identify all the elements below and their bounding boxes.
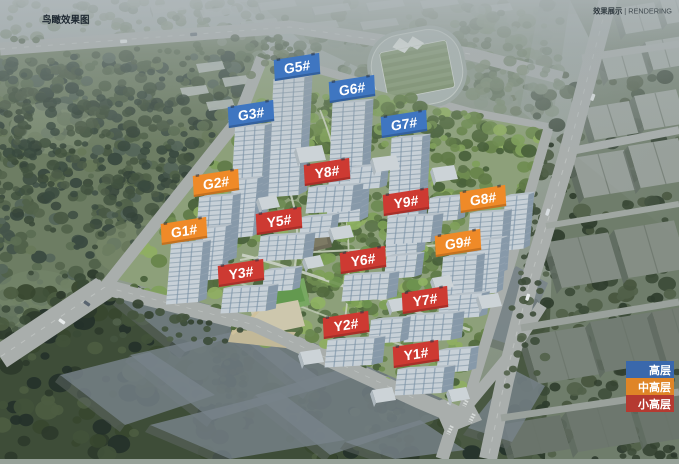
svg-text:高层: 高层 [649,363,671,377]
svg-text:鸟瞰效果图: 鸟瞰效果图 [42,14,90,26]
svg-text:效果展示 | RENDERING: 效果展示 | RENDERING [593,7,672,16]
svg-text:中高层: 中高层 [638,380,671,394]
svg-text:小高层: 小高层 [637,397,671,411]
